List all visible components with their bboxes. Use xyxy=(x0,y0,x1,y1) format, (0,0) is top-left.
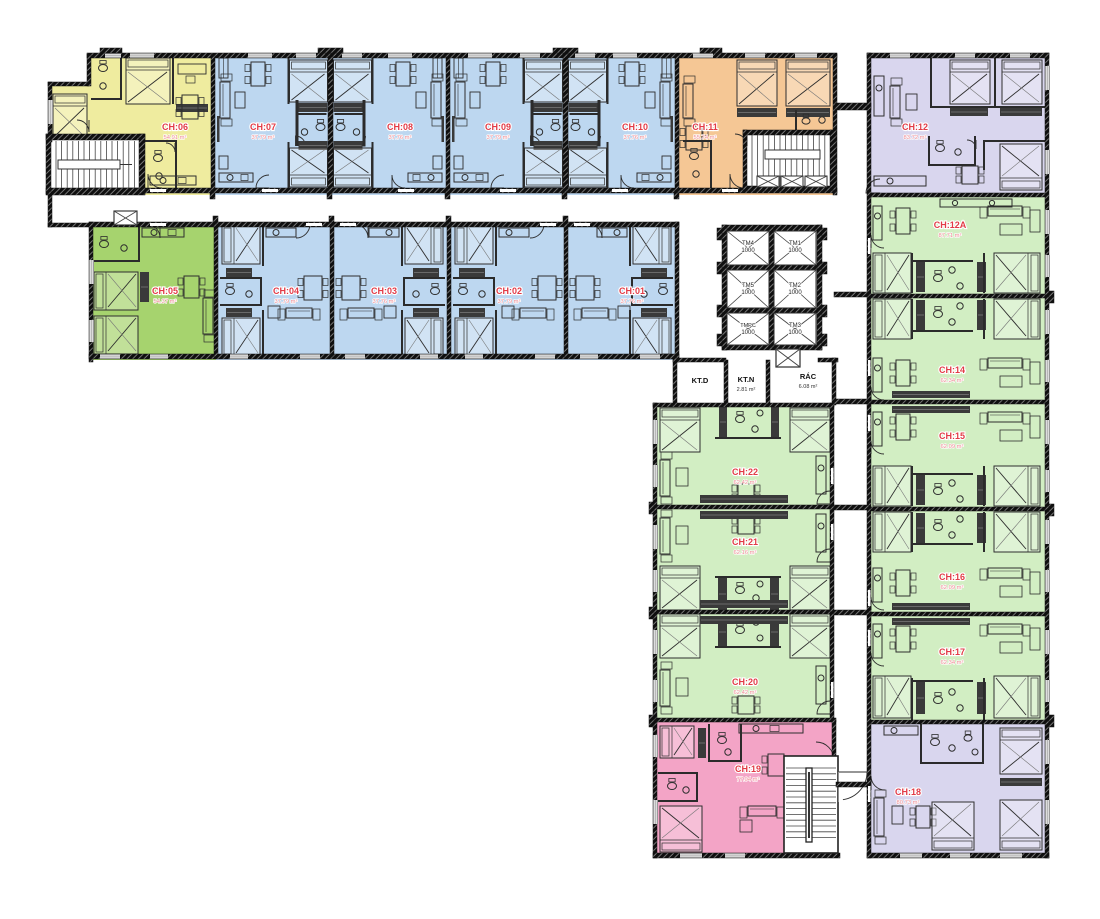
svg-text:CH:12: CH:12 xyxy=(902,122,928,132)
svg-text:37.76 m²: 37.76 m² xyxy=(624,135,647,141)
svg-text:CH:22: CH:22 xyxy=(732,467,758,477)
svg-text:54.37 m²: 54.37 m² xyxy=(154,299,177,305)
svg-text:37.76 m²: 37.76 m² xyxy=(389,135,412,141)
svg-text:62.34 m²: 62.34 m² xyxy=(941,660,964,666)
svg-text:CH:08: CH:08 xyxy=(387,122,413,132)
svg-text:CH:09: CH:09 xyxy=(485,122,511,132)
svg-text:CH:10: CH:10 xyxy=(622,122,648,132)
svg-text:CH:18: CH:18 xyxy=(895,787,921,797)
svg-text:37.79 m²: 37.79 m² xyxy=(275,299,298,305)
svg-text:CH:03: CH:03 xyxy=(371,286,397,296)
svg-text:37.79 m²: 37.79 m² xyxy=(498,299,521,305)
svg-text:62.42 m²: 62.42 m² xyxy=(734,690,757,696)
svg-text:CH:17: CH:17 xyxy=(939,647,965,657)
svg-text:1000: 1000 xyxy=(741,330,755,336)
svg-text:1000: 1000 xyxy=(741,248,755,254)
svg-text:2.81 m²: 2.81 m² xyxy=(737,387,756,393)
svg-text:37.76 m²: 37.76 m² xyxy=(621,299,644,305)
svg-text:CH:05: CH:05 xyxy=(152,286,178,296)
svg-text:CH:07: CH:07 xyxy=(250,122,276,132)
svg-text:62.09 m²: 62.09 m² xyxy=(941,444,964,450)
svg-text:CH:02: CH:02 xyxy=(496,286,522,296)
svg-text:CH:19: CH:19 xyxy=(735,764,761,774)
svg-text:CH:16: CH:16 xyxy=(939,572,965,582)
svg-text:CH:04: CH:04 xyxy=(273,286,299,296)
svg-text:1000: 1000 xyxy=(741,290,755,296)
svg-text:62.42 m²: 62.42 m² xyxy=(734,480,757,486)
svg-text:TM3: TM3 xyxy=(789,323,802,329)
svg-text:37.79 m²: 37.79 m² xyxy=(487,135,510,141)
svg-text:CH:21: CH:21 xyxy=(732,537,758,547)
svg-text:TMPC: TMPC xyxy=(740,323,756,329)
svg-text:RÁC: RÁC xyxy=(800,372,817,381)
svg-text:CH:20: CH:20 xyxy=(732,677,758,687)
svg-text:CH:15: CH:15 xyxy=(939,431,965,441)
svg-text:1000: 1000 xyxy=(788,330,802,336)
svg-text:1000: 1000 xyxy=(788,248,802,254)
svg-text:62.09 m²: 62.09 m² xyxy=(941,585,964,591)
svg-text:62.34 m²: 62.34 m² xyxy=(941,378,964,384)
svg-text:KT.D: KT.D xyxy=(692,376,709,385)
svg-text:CH:11: CH:11 xyxy=(692,122,718,132)
svg-text:TM5: TM5 xyxy=(742,283,755,289)
svg-text:CH:12A: CH:12A xyxy=(934,220,967,230)
svg-text:1000: 1000 xyxy=(788,290,802,296)
svg-text:37.79 m²: 37.79 m² xyxy=(252,135,275,141)
svg-text:87.71 m²: 87.71 m² xyxy=(939,233,962,239)
svg-text:CH:01: CH:01 xyxy=(619,286,645,296)
svg-text:6.08 m²: 6.08 m² xyxy=(799,384,818,390)
svg-text:77.04 m²: 77.04 m² xyxy=(737,777,760,783)
svg-text:TM4: TM4 xyxy=(742,241,755,247)
svg-text:TM2: TM2 xyxy=(789,283,802,289)
svg-text:37.76 m²: 37.76 m² xyxy=(373,299,396,305)
svg-text:CH:06: CH:06 xyxy=(162,122,188,132)
svg-text:KT.N: KT.N xyxy=(738,375,755,384)
svg-text:CH:14: CH:14 xyxy=(939,365,965,375)
svg-text:62.16 m²: 62.16 m² xyxy=(734,550,757,556)
svg-text:80.73 m²: 80.73 m² xyxy=(897,800,920,806)
svg-text:83.72 m²: 83.72 m² xyxy=(904,135,927,141)
svg-text:54.91 m²: 54.91 m² xyxy=(164,135,187,141)
svg-text:55.74 m²: 55.74 m² xyxy=(694,135,717,141)
svg-text:TM1: TM1 xyxy=(789,241,802,247)
